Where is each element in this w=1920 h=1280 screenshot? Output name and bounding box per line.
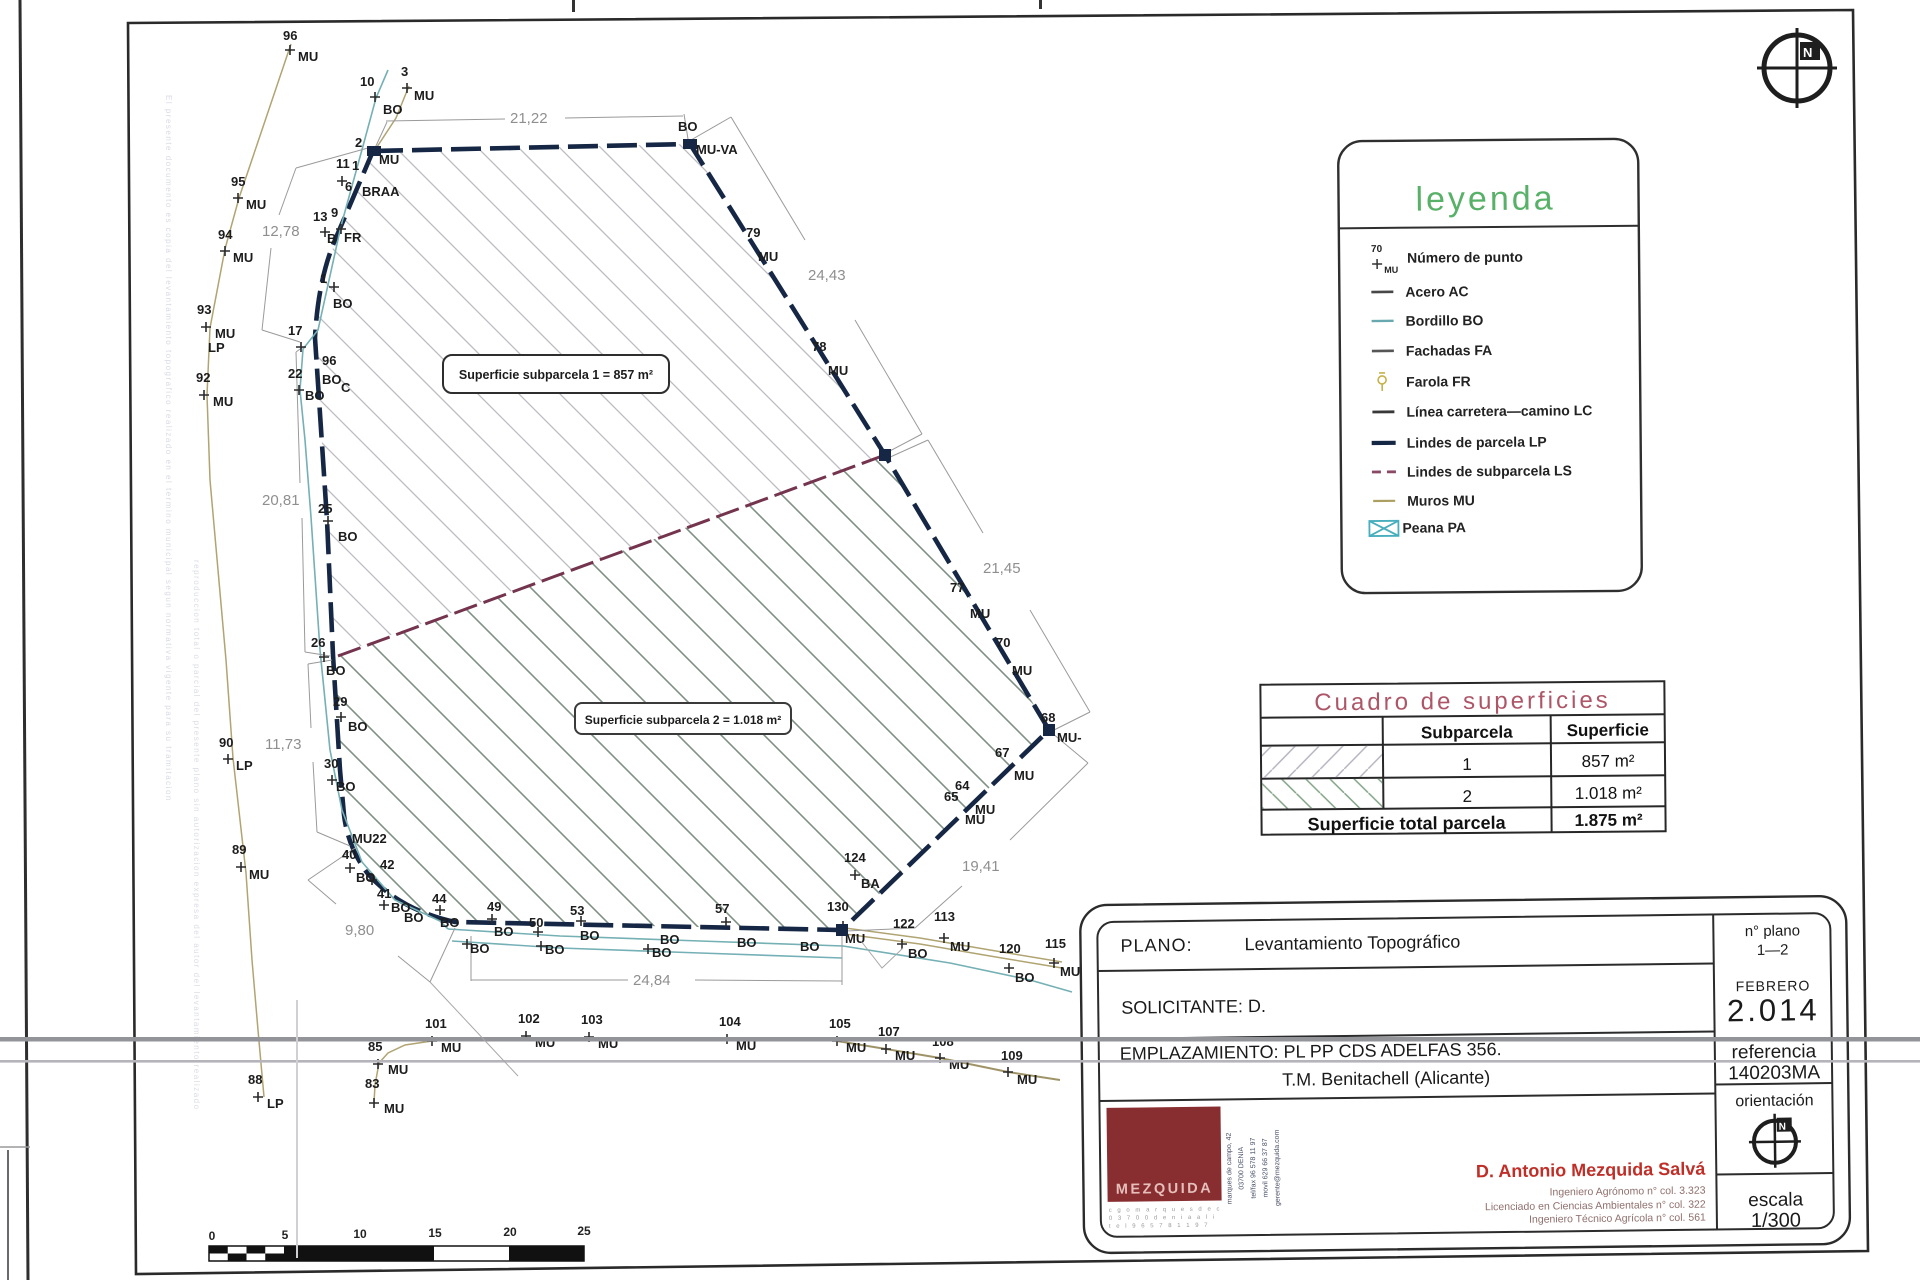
svg-text:6: 6 [345,179,352,194]
svg-text:BO: BO [404,910,424,925]
svg-text:2: 2 [355,135,362,150]
svg-text:41: 41 [377,886,391,901]
svg-text:MU: MU [298,49,318,64]
svg-text:122: 122 [893,916,915,931]
svg-text:BO: BO [652,945,672,960]
svg-text:22: 22 [288,366,302,381]
svg-text:MU: MU [970,606,990,621]
svg-text:Acero AC: Acero AC [1405,283,1468,300]
svg-text:12,78: 12,78 [262,223,300,240]
svg-text:Ingeniero Técnico Agrícola: Ingeniero Técnico Agrícola n° col. 561 [1529,1212,1706,1226]
svg-text:N: N [1803,45,1812,60]
svg-text:D. Antonio Mezquida Salvá: D. Antonio Mezquida Salvá [1476,1159,1707,1182]
svg-text:68: 68 [1041,710,1055,725]
svg-text:Lindes de parcela LP: Lindes de parcela LP [1407,434,1547,451]
svg-text:BO: BO [494,924,514,939]
svg-text:96: 96 [322,353,336,368]
svg-text:MU: MU [758,249,778,264]
svg-text:70: 70 [1371,244,1383,255]
svg-text:MU: MU [828,363,848,378]
svg-text:0: 0 [209,1229,216,1243]
svg-text:MU: MU [213,394,233,409]
svg-text:BO: BO [336,779,356,794]
svg-text:BO: BO [338,529,358,544]
svg-text:BO: BO [908,946,928,961]
svg-text:78: 78 [812,339,826,354]
svg-text:Fachadas FA: Fachadas FA [1406,342,1493,359]
svg-text:857 m²: 857 m² [1581,752,1634,771]
svg-text:50: 50 [529,915,543,930]
svg-text:107: 107 [878,1024,900,1039]
svg-text:40: 40 [342,847,356,862]
svg-text:MU: MU [246,197,266,212]
svg-text:n° plano: n° plano [1745,922,1800,940]
svg-text:referencia: referencia [1731,1041,1816,1063]
svg-text:MEZQUIDA: MEZQUIDA [1116,1181,1214,1198]
svg-text:MU: MU [441,1040,461,1055]
svg-text:MU: MU [249,867,269,882]
svg-text:MU: MU [379,152,399,167]
svg-text:MU: MU [846,1040,866,1055]
svg-text:MU-: MU- [1057,730,1082,745]
svg-text:reproduccion total o parcial d: reproduccion total o parcial del present… [192,560,201,1111]
svg-text:89: 89 [232,842,246,857]
svg-text:BO: BO [326,663,346,678]
svg-text:10: 10 [353,1227,367,1241]
svg-text:104: 104 [719,1014,741,1029]
svg-text:BO: BO [348,719,368,734]
svg-text:BO: BO [580,928,600,943]
svg-text:1.875 m²: 1.875 m² [1574,810,1643,830]
svg-text:SOLICITANTE: D.: SOLICITANTE: D. [1121,996,1266,1018]
svg-text:9,80: 9,80 [345,922,374,939]
svg-text:MU: MU [1060,964,1080,979]
svg-text:67: 67 [995,745,1009,760]
svg-text:77: 77 [950,580,964,595]
svg-text:Farola FR: Farola FR [1406,373,1471,390]
svg-text:Superficie subparcela 2 = 1.: Superficie subparcela 2 = 1.018 m² [585,713,781,727]
svg-text:BO: BO [470,941,490,956]
svg-text:PLANO:: PLANO: [1120,935,1192,956]
svg-text:orientación: orientación [1735,1092,1813,1110]
svg-text:Cuadro de superficies: Cuadro de superficies [1314,687,1611,717]
svg-text:49: 49 [487,899,501,914]
svg-text:Bordillo BO: Bordillo BO [1406,312,1484,329]
svg-text:03700 DENIA: 03700 DENIA [1238,1146,1246,1189]
svg-text:Superficie: Superficie [1567,720,1649,740]
svg-text:65: 65 [944,789,958,804]
svg-text:BO: BO [333,296,353,311]
svg-text:C: C [341,380,351,395]
svg-text:2.014: 2.014 [1727,992,1820,1028]
svg-text:tel/fax 96 578 11 97: tel/fax 96 578 11 97 [1250,1137,1258,1198]
svg-text:26: 26 [311,635,325,650]
svg-text:MU: MU [1012,663,1032,678]
svg-text:120: 120 [999,941,1021,956]
svg-text:BO: BO [545,942,565,957]
svg-text:Subparcela: Subparcela [1421,723,1513,743]
svg-text:95: 95 [231,174,245,189]
svg-text:24,84: 24,84 [633,972,671,989]
svg-text:20,81: 20,81 [262,492,300,509]
svg-text:B: B [327,231,336,246]
svg-text:BA: BA [861,876,880,891]
svg-text:88: 88 [248,1072,262,1087]
svg-text:MU-VA: MU-VA [696,142,738,157]
svg-text:MU: MU [233,250,253,265]
svg-text:BO: BO [737,935,757,950]
svg-text:93: 93 [197,302,211,317]
svg-text:19,41: 19,41 [962,858,1000,875]
svg-text:2: 2 [1463,787,1473,806]
svg-text:MU: MU [1017,1072,1037,1087]
svg-text:10: 10 [360,74,374,89]
svg-text:MU: MU [215,326,235,341]
svg-text:1: 1 [320,271,327,286]
svg-text:25: 25 [318,501,332,516]
svg-text:102: 102 [518,1011,540,1026]
svg-text:20: 20 [503,1225,517,1239]
svg-text:70: 70 [996,635,1010,650]
svg-text:105: 105 [829,1016,851,1031]
svg-text:44: 44 [432,891,447,906]
svg-text:LP: LP [208,340,225,355]
svg-text:113: 113 [934,909,955,924]
svg-text:BO: BO [383,102,403,117]
svg-text:MU22: MU22 [352,831,387,846]
svg-text:Peana PA: Peana PA [1402,519,1466,536]
svg-text:T.M. Benitachell (Alicante): T.M. Benitachell (Alicante) [1282,1067,1490,1090]
svg-text:MU: MU [949,1057,969,1072]
svg-text:21,22: 21,22 [510,110,548,127]
svg-text:103: 103 [581,1012,603,1027]
svg-text:t e l 9 6 5 7 8 1 1 9 7: t e l 9 6 5 7 8 1 1 9 7 [1109,1223,1210,1230]
svg-text:gerente@mezquida.com: gerente@mezquida.com [1274,1129,1282,1206]
svg-text:140203MA: 140203MA [1728,1062,1820,1084]
svg-text:BRAA: BRAA [362,184,400,199]
svg-text:MU: MU [388,1062,408,1077]
svg-text:Muros MU: Muros MU [1407,492,1475,509]
svg-text:MU: MU [414,88,434,103]
svg-text:1: 1 [1462,755,1472,774]
svg-text:92: 92 [196,370,210,385]
svg-text:MU: MU [1014,768,1034,783]
svg-text:MU: MU [950,939,970,954]
svg-text:Superficie subparcela 1 = 85: Superficie subparcela 1 = 857 m² [459,368,653,382]
svg-text:BO: BO [440,915,460,930]
svg-text:79: 79 [746,225,760,240]
svg-text:MU: MU [1384,265,1398,275]
svg-text:Lindes de subparcela LS: Lindes de subparcela LS [1407,462,1572,479]
svg-text:N: N [1779,1122,1786,1133]
svg-text:Levantamiento Topográfico: Levantamiento Topográfico [1244,932,1460,955]
svg-text:1.018 m²: 1.018 m² [1575,783,1643,803]
svg-text:21,45: 21,45 [983,560,1021,577]
svg-text:1: 1 [352,158,359,173]
svg-text:101: 101 [425,1016,447,1031]
svg-text:MU: MU [965,812,985,827]
svg-text:42: 42 [380,857,394,872]
svg-text:1—2: 1—2 [1757,942,1789,959]
svg-text:1/300: 1/300 [1751,1209,1801,1232]
svg-text:BO: BO [356,870,376,885]
svg-text:escala: escala [1748,1189,1804,1211]
svg-text:marques de campo, 42: marques de campo, 42 [1226,1132,1234,1204]
svg-text:LP: LP [236,758,253,773]
svg-text:LP: LP [267,1096,284,1111]
svg-text:96: 96 [283,28,297,43]
svg-text:17: 17 [288,323,302,338]
svg-text:11: 11 [336,156,350,171]
svg-text:53: 53 [570,903,584,918]
svg-text:Línea carretera—camino LC: Línea carretera—camino LC [1406,402,1592,420]
svg-text:BO: BO [305,388,325,403]
svg-text:BO: BO [322,372,342,387]
svg-text:115: 115 [1045,936,1066,951]
svg-text:30: 30 [324,756,338,771]
svg-text:25: 25 [577,1224,591,1238]
svg-text:15: 15 [428,1226,442,1240]
svg-text:BO: BO [1015,970,1035,985]
svg-text:El presente documento es copia: El presente documento es copia del levan… [164,95,173,802]
svg-text:124: 124 [844,850,866,865]
svg-text:3: 3 [401,64,408,79]
svg-text:130: 130 [827,899,849,914]
svg-text:11,73: 11,73 [265,736,301,753]
svg-text:MU: MU [384,1101,404,1116]
svg-text:57: 57 [715,901,729,916]
svg-text:94: 94 [218,227,233,242]
svg-text:FR: FR [344,230,362,245]
svg-text:BO: BO [800,939,820,954]
svg-text:Ingeniero Agrónomo n° col.: Ingeniero Agrónomo n° col. 3.323 [1549,1185,1705,1199]
svg-text:MU: MU [845,931,865,946]
svg-text:leyenda: leyenda [1415,179,1555,218]
svg-text:83: 83 [365,1076,379,1091]
svg-text:90: 90 [219,735,233,750]
svg-text:5: 5 [282,1228,289,1242]
svg-text:BO: BO [678,119,698,134]
svg-text:13: 13 [313,209,327,224]
svg-text:24,43: 24,43 [808,267,846,284]
svg-text:movil 629 66 37 87: movil 629 66 37 87 [1262,1138,1270,1197]
svg-text:Superficie total parcela: Superficie total parcela [1307,813,1506,835]
svg-text:9: 9 [331,205,338,220]
svg-text:Número de punto: Número de punto [1407,249,1523,266]
svg-text:29: 29 [333,694,347,709]
